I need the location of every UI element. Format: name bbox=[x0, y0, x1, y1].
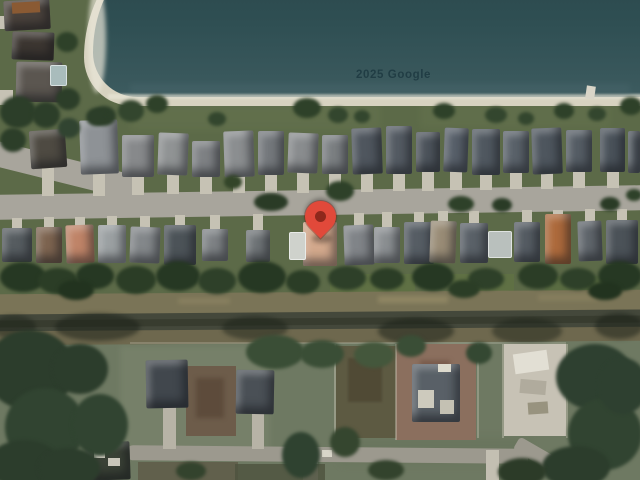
house bbox=[600, 128, 625, 172]
house bbox=[36, 227, 62, 263]
tree bbox=[86, 108, 106, 126]
satellite-map[interactable]: 2025 Google bbox=[0, 0, 640, 480]
house bbox=[157, 132, 188, 175]
tree bbox=[176, 462, 206, 480]
house bbox=[202, 229, 228, 261]
car bbox=[322, 450, 332, 457]
driveway bbox=[297, 170, 309, 193]
house bbox=[514, 222, 540, 262]
tree bbox=[542, 446, 610, 480]
tree bbox=[448, 196, 474, 212]
house bbox=[351, 127, 383, 174]
tree bbox=[58, 118, 80, 138]
house bbox=[246, 230, 270, 262]
lot-line bbox=[502, 344, 504, 438]
house bbox=[460, 223, 488, 263]
pool-enclosure bbox=[289, 232, 306, 260]
tree bbox=[52, 344, 108, 394]
house bbox=[122, 135, 154, 177]
construction-debris bbox=[519, 379, 546, 395]
house bbox=[577, 221, 602, 262]
house bbox=[98, 225, 126, 263]
house bbox=[164, 225, 196, 265]
tree bbox=[32, 102, 60, 128]
roof-patch bbox=[108, 458, 120, 466]
house bbox=[343, 224, 374, 265]
tree bbox=[0, 128, 26, 152]
tree bbox=[485, 107, 507, 123]
house bbox=[146, 360, 189, 409]
driveway bbox=[252, 412, 264, 449]
house bbox=[531, 127, 563, 174]
bank-path bbox=[378, 296, 448, 303]
tree bbox=[282, 432, 320, 478]
lake-water bbox=[93, 0, 640, 97]
hedge bbox=[370, 268, 404, 290]
tree bbox=[293, 98, 321, 118]
lot-line bbox=[130, 342, 566, 344]
house bbox=[545, 214, 571, 264]
house bbox=[386, 126, 412, 174]
tree bbox=[354, 110, 370, 123]
tree bbox=[354, 342, 394, 368]
dirt-patch bbox=[196, 378, 224, 418]
tree bbox=[600, 197, 620, 211]
tree bbox=[246, 335, 304, 369]
hedge bbox=[328, 266, 366, 290]
tree bbox=[588, 107, 606, 121]
pool-enclosure bbox=[50, 65, 67, 86]
tree bbox=[224, 175, 242, 189]
house bbox=[223, 130, 255, 177]
tree bbox=[0, 96, 36, 128]
house bbox=[258, 131, 284, 175]
construction-debris bbox=[528, 401, 549, 414]
tree bbox=[433, 103, 455, 119]
tree bbox=[620, 97, 640, 115]
hedge bbox=[156, 261, 200, 291]
tree bbox=[254, 193, 288, 211]
tree-shadow bbox=[55, 313, 140, 341]
driveway bbox=[163, 407, 176, 449]
hedge bbox=[238, 261, 286, 293]
driveway bbox=[393, 171, 405, 191]
tree-shadow bbox=[492, 318, 562, 344]
driveway bbox=[265, 172, 277, 193]
house bbox=[628, 131, 640, 173]
tree bbox=[498, 458, 546, 480]
tree bbox=[598, 358, 640, 414]
tree bbox=[554, 103, 574, 119]
house bbox=[2, 228, 32, 262]
house bbox=[129, 226, 160, 263]
tree bbox=[328, 107, 348, 123]
tree bbox=[300, 340, 344, 368]
roof-accent bbox=[12, 1, 41, 13]
tree bbox=[118, 100, 144, 122]
hedge bbox=[116, 266, 156, 294]
house bbox=[65, 225, 94, 264]
lot-line bbox=[395, 344, 397, 440]
tree bbox=[38, 448, 100, 480]
tree bbox=[56, 88, 80, 110]
tree bbox=[492, 198, 512, 212]
hedge bbox=[198, 268, 236, 294]
hedge bbox=[58, 280, 94, 300]
tree bbox=[368, 460, 404, 480]
hedge bbox=[448, 280, 480, 298]
house bbox=[443, 128, 469, 173]
house bbox=[192, 141, 220, 177]
house bbox=[429, 221, 456, 264]
tree bbox=[208, 112, 226, 126]
shoreline bbox=[108, 94, 640, 99]
house bbox=[79, 119, 119, 174]
house bbox=[287, 132, 318, 173]
driveway bbox=[132, 174, 144, 195]
bank-path bbox=[178, 298, 230, 304]
house bbox=[472, 129, 500, 175]
tree bbox=[330, 427, 360, 457]
house bbox=[12, 31, 55, 60]
dock bbox=[585, 85, 596, 99]
construction-wall bbox=[440, 400, 454, 414]
construction-material bbox=[438, 364, 451, 372]
tree-shadow bbox=[595, 313, 640, 339]
house bbox=[374, 227, 400, 263]
tree bbox=[518, 112, 534, 125]
hedge bbox=[588, 282, 622, 300]
house bbox=[503, 131, 529, 173]
house bbox=[566, 130, 592, 172]
tree bbox=[146, 95, 168, 113]
tree bbox=[326, 181, 354, 201]
tree bbox=[466, 342, 492, 364]
hedge bbox=[518, 263, 558, 289]
driveway bbox=[42, 165, 54, 196]
tree bbox=[396, 335, 426, 357]
tree bbox=[56, 32, 78, 52]
house bbox=[236, 370, 275, 415]
house bbox=[416, 132, 440, 172]
driveway bbox=[93, 171, 105, 196]
tree bbox=[626, 189, 640, 201]
shallow-water bbox=[130, 84, 630, 93]
driveway bbox=[486, 450, 499, 480]
driveway bbox=[422, 169, 434, 191]
house bbox=[606, 220, 638, 264]
imagery-watermark: 2025 Google bbox=[356, 69, 431, 81]
driveway bbox=[167, 172, 179, 194]
hedge bbox=[286, 270, 320, 294]
pool-enclosure bbox=[488, 231, 512, 258]
construction-wall bbox=[418, 390, 434, 408]
tree bbox=[72, 394, 128, 456]
house bbox=[322, 135, 348, 174]
